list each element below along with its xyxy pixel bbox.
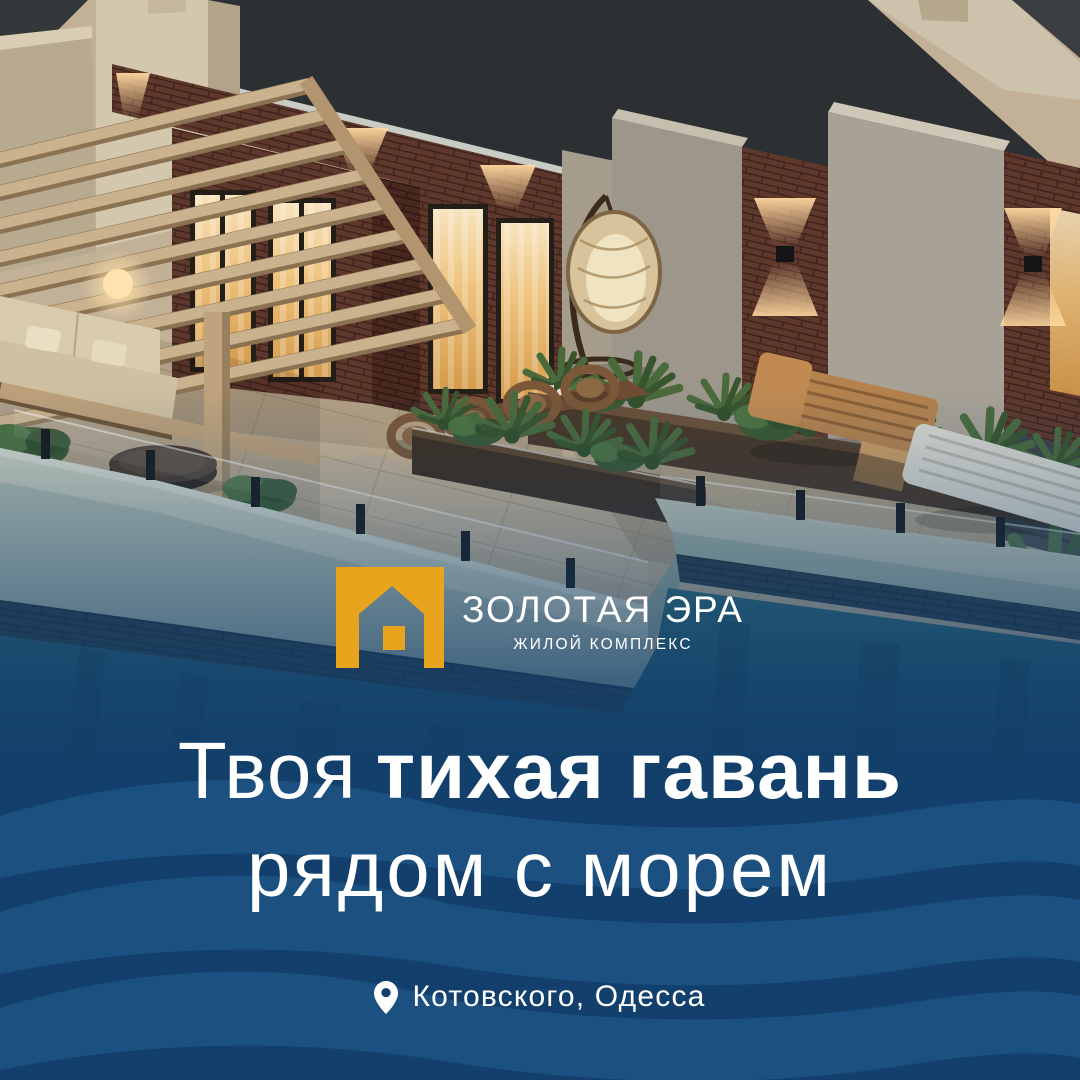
map-pin-icon — [374, 981, 398, 1014]
headline-line1: Твоятихая гавань — [0, 722, 1080, 820]
ad-poster: ЗОЛОТАЯ ЭРА ЖИЛОЙ КОМПЛЕКС Твоятихая гав… — [0, 0, 1080, 1080]
brand-logo: ЗОЛОТАЯ ЭРА ЖИЛОЙ КОМПЛЕКС — [0, 567, 1080, 668]
headline-line1-bold: тихая гавань — [376, 726, 902, 815]
poster-content: ЗОЛОТАЯ ЭРА ЖИЛОЙ КОМПЛЕКС Твоятихая гав… — [0, 0, 1080, 1080]
house-icon — [336, 567, 444, 668]
brand-name: ЗОЛОТАЯ ЭРА — [462, 591, 744, 628]
headline: Твоятихая гавань рядом с морем — [0, 722, 1080, 918]
location-label: Котовского, Одесса — [412, 980, 705, 1014]
headline-line2: рядом с морем — [0, 820, 1080, 918]
headline-line1-regular: Твоя — [178, 726, 357, 815]
brand-text: ЗОЛОТАЯ ЭРА ЖИЛОЙ КОМПЛЕКС — [462, 591, 744, 654]
brand-tagline: ЖИЛОЙ КОМПЛЕКС — [513, 636, 692, 654]
location-row: Котовского, Одесса — [0, 980, 1080, 1014]
